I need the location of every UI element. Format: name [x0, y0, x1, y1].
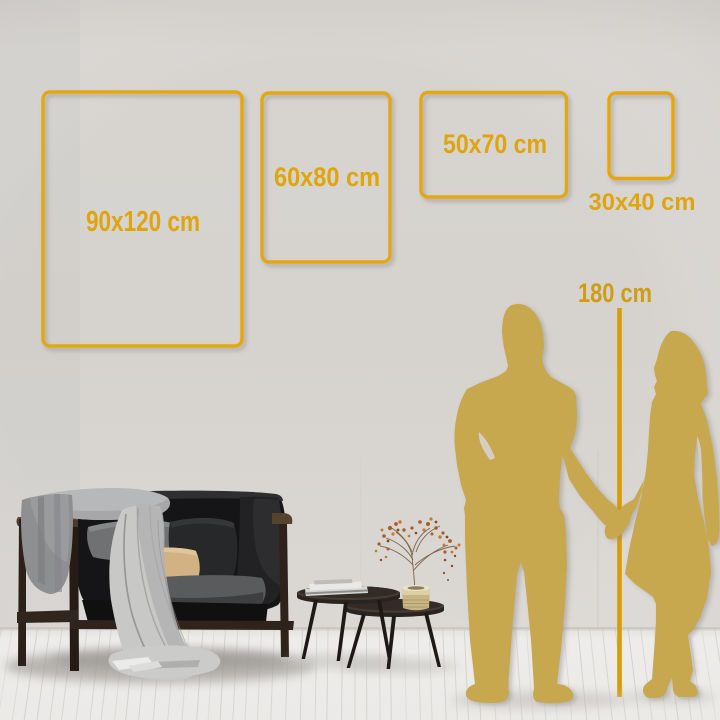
svg-text:180 cm: 180 cm: [578, 278, 652, 308]
svg-text:50x70 cm: 50x70 cm: [443, 129, 547, 159]
svg-text:30x40 cm: 30x40 cm: [589, 189, 696, 216]
svg-text:60x80 cm: 60x80 cm: [274, 162, 380, 192]
svg-text:90x120 cm: 90x120 cm: [86, 206, 200, 238]
